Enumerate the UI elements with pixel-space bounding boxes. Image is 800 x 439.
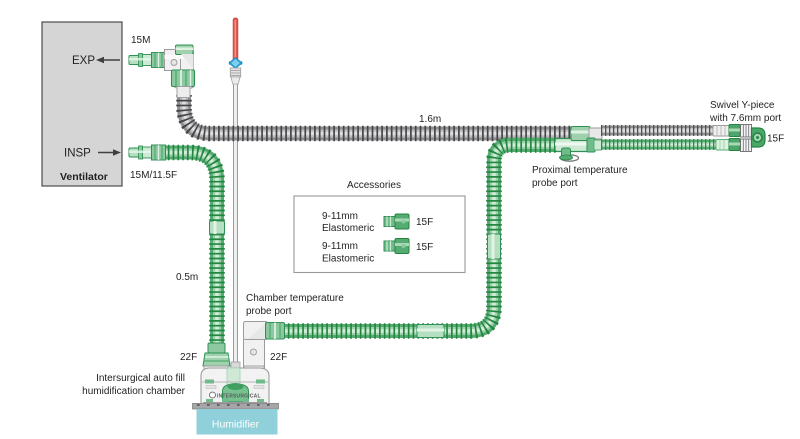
svg-text:22F: 22F bbox=[270, 352, 287, 363]
svg-text:15M: 15M bbox=[131, 35, 150, 46]
svg-text:1.6m: 1.6m bbox=[419, 114, 441, 125]
svg-text:15F: 15F bbox=[767, 134, 784, 145]
svg-text:15F: 15F bbox=[416, 242, 433, 253]
svg-text:Ventilator: Ventilator bbox=[60, 171, 108, 183]
svg-text:15M/11.5F: 15M/11.5F bbox=[130, 170, 177, 181]
svg-text:INSP: INSP bbox=[64, 148, 91, 160]
svg-text:Chamber temperature: Chamber temperature bbox=[246, 293, 344, 304]
svg-text:15F: 15F bbox=[416, 217, 433, 228]
svg-text:0.5m: 0.5m bbox=[176, 272, 198, 283]
svg-text:EXP: EXP bbox=[72, 55, 95, 67]
svg-text:9-11mm: 9-11mm bbox=[322, 211, 358, 222]
svg-text:INTERSURGICAL: INTERSURGICAL bbox=[217, 394, 261, 400]
svg-text:probe port: probe port bbox=[246, 306, 292, 317]
svg-text:probe port: probe port bbox=[532, 178, 578, 189]
svg-text:Elastomeric: Elastomeric bbox=[322, 223, 374, 234]
svg-text:Proximal temperature: Proximal temperature bbox=[532, 165, 628, 176]
svg-text:with 7.6mm port: with 7.6mm port bbox=[709, 113, 781, 124]
svg-text:Elastomeric: Elastomeric bbox=[322, 254, 374, 265]
svg-text:humidification chamber: humidification chamber bbox=[82, 386, 185, 397]
svg-text:9-11mm: 9-11mm bbox=[322, 241, 358, 252]
svg-text:Intersurgical auto fill: Intersurgical auto fill bbox=[96, 373, 185, 384]
svg-text:22F: 22F bbox=[180, 352, 197, 363]
svg-text:Humidifier: Humidifier bbox=[212, 419, 260, 431]
svg-text:Swivel Y-piece: Swivel Y-piece bbox=[710, 100, 775, 111]
svg-text:Accessories: Accessories bbox=[347, 180, 401, 191]
